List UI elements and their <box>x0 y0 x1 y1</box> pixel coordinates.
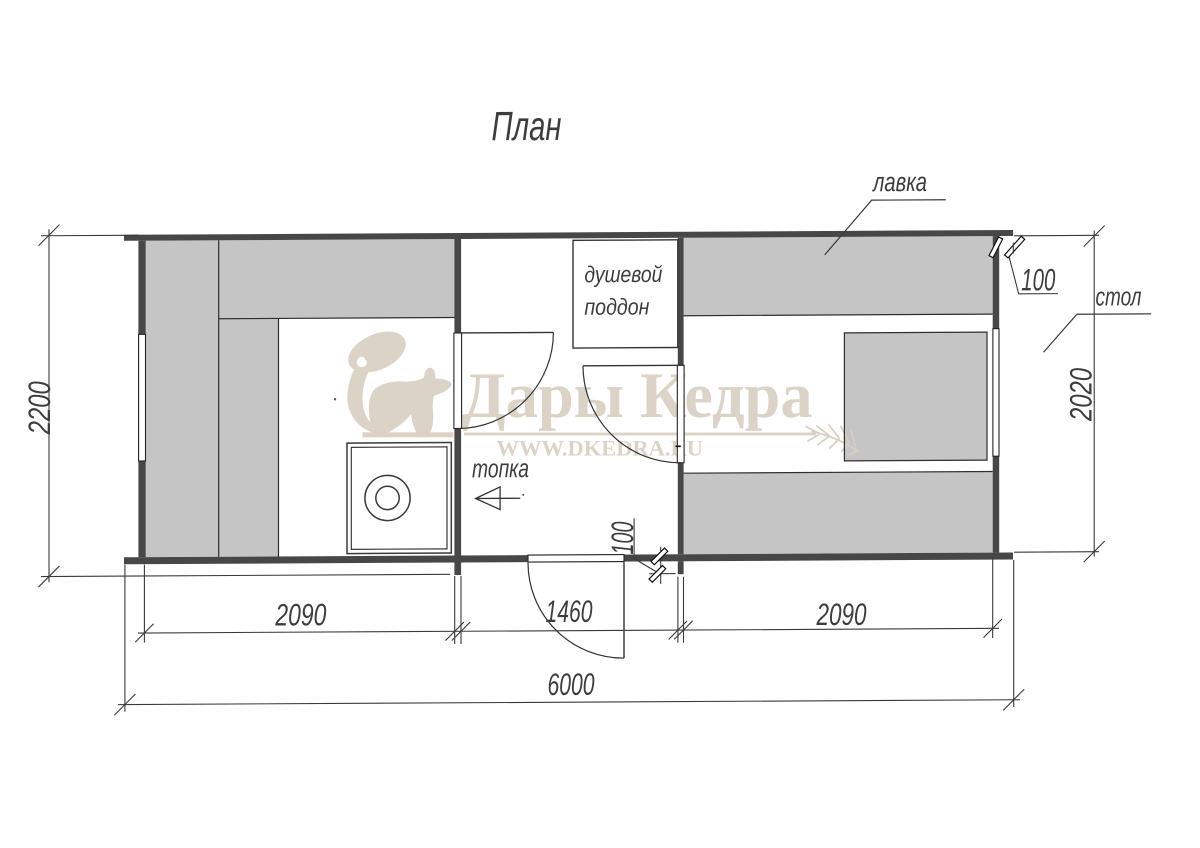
svg-text:6000: 6000 <box>548 667 595 702</box>
svg-text:топка: топка <box>472 453 529 483</box>
svg-text:стол: стол <box>1096 281 1142 311</box>
svg-text:100: 100 <box>1021 262 1055 297</box>
svg-text:поддон: поддон <box>584 293 649 319</box>
svg-text:2090: 2090 <box>816 597 867 632</box>
svg-text:2090: 2090 <box>275 597 327 632</box>
svg-text:2200: 2200 <box>22 381 57 435</box>
svg-text:1460: 1460 <box>546 594 593 629</box>
svg-text:План: План <box>492 103 562 149</box>
svg-text:2020: 2020 <box>1064 368 1099 422</box>
svg-text:лавка: лавка <box>872 167 927 197</box>
svg-text:душевой: душевой <box>584 261 662 287</box>
svg-text:Дары Кедра: Дары Кедра <box>462 360 813 432</box>
